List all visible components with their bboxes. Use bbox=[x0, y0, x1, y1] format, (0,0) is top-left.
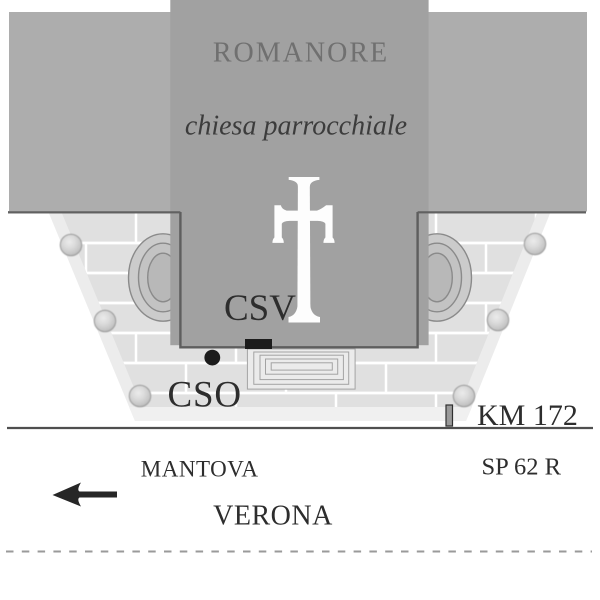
svg-text:ROMANORE: ROMANORE bbox=[213, 37, 389, 68]
svg-text:SP 62 R: SP 62 R bbox=[482, 454, 562, 481]
svg-text:MANTOVA: MANTOVA bbox=[141, 457, 259, 482]
svg-text:chiesa parrocchiale: chiesa parrocchiale bbox=[185, 111, 407, 142]
svg-text:KM 172: KM 172 bbox=[477, 399, 578, 432]
svg-text:CSO: CSO bbox=[168, 375, 242, 416]
svg-text:VERONA: VERONA bbox=[213, 501, 333, 532]
svg-text:CSV: CSV bbox=[224, 288, 296, 329]
